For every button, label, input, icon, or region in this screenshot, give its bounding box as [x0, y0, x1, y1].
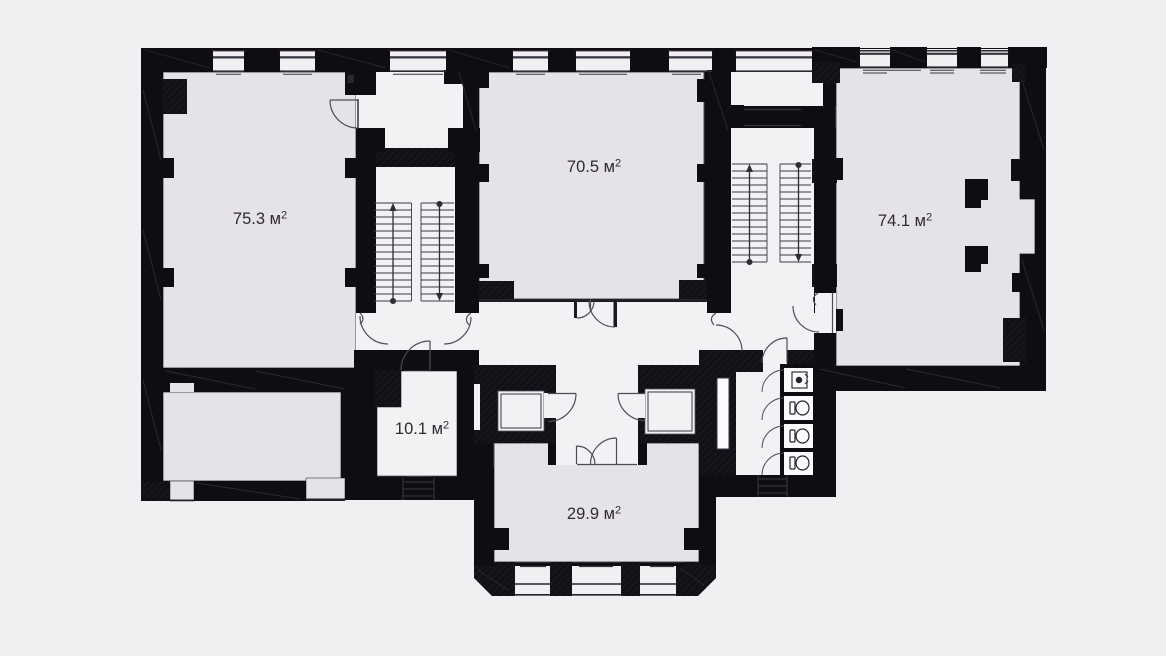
svg-text:70.5 м2: 70.5 м2 — [567, 158, 621, 177]
svg-text:10.1 м2: 10.1 м2 — [395, 420, 449, 439]
svg-text:75.3 м2: 75.3 м2 — [233, 210, 287, 229]
svg-text:29.9 м2: 29.9 м2 — [567, 505, 621, 524]
svg-text:74.1 м2: 74.1 м2 — [878, 212, 932, 231]
